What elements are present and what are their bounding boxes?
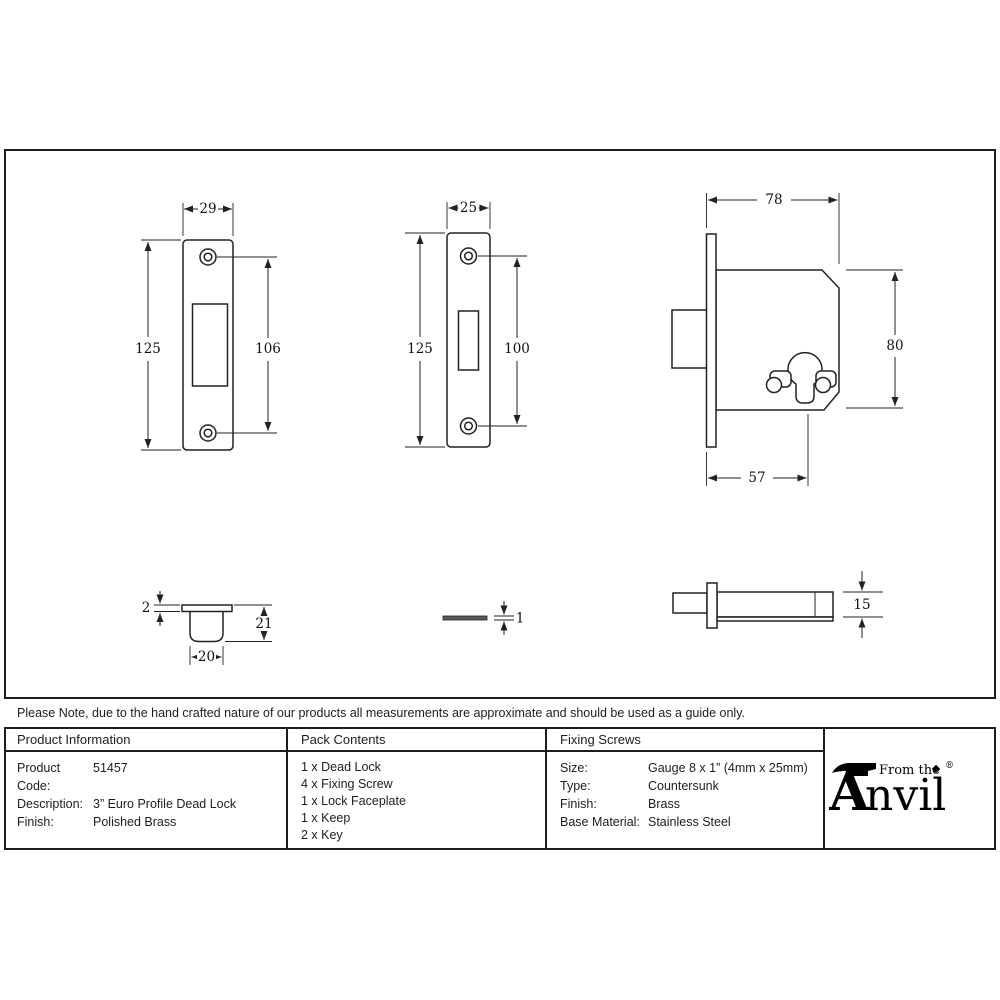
dim-label: 2 <box>142 600 151 616</box>
pack-item: 2 x Key <box>301 827 545 844</box>
left-cam-cutout-circle <box>767 378 782 393</box>
dim-width-29: 29 <box>183 201 233 236</box>
dim-label: 125 <box>407 341 433 357</box>
dim-height-15: 15 <box>843 571 883 638</box>
dim-lip-2: 2 <box>138 591 180 626</box>
row-label: Size: <box>560 759 648 777</box>
note-text: Please Note, due to the hand crafted nat… <box>17 706 745 720</box>
row-value: Polished Brass <box>93 813 176 831</box>
dim-label: 100 <box>504 341 530 357</box>
row-value: Stainless Steel <box>648 813 731 831</box>
table-row: Finish: Polished Brass <box>17 813 286 831</box>
dim-height-125: 125 <box>405 233 445 447</box>
dim-label: 57 <box>748 470 765 486</box>
row-label: Description: <box>17 795 93 813</box>
pack-item: 4 x Fixing Screw <box>301 776 545 793</box>
table-row: Base Material: Stainless Steel <box>560 813 823 831</box>
dim-label: 20 <box>198 649 215 665</box>
keep-flange <box>182 605 232 612</box>
drawing-keep-profile: 2 21 20 <box>138 591 273 665</box>
logo-from-the: From the <box>879 763 940 778</box>
product-info-table: Product Information Product Code: 51457 … <box>4 729 996 848</box>
row-label: Finish: <box>560 795 648 813</box>
dim-height-125: 125 <box>135 240 181 450</box>
dim-label: 21 <box>255 616 272 632</box>
dim-width-25: 25 <box>447 200 490 229</box>
column-fixing-screws: Fixing Screws Size: Gauge 8 x 1” (4mm x … <box>545 729 823 848</box>
column-pack-contents: Pack Contents 1 x Dead Lock 4 x Fixing S… <box>286 729 545 848</box>
dim-label: 15 <box>853 597 870 613</box>
row-value: Gauge 8 x 1” (4mm x 25mm) <box>648 759 808 777</box>
drawing-lock-case-top: 15 <box>673 571 883 638</box>
row-value: Brass <box>648 795 680 813</box>
table-row: Product Code: 51457 <box>17 759 286 795</box>
row-value: 51457 <box>93 759 128 795</box>
dim-label: 25 <box>460 200 477 216</box>
row-value: 3” Euro Profile Dead Lock <box>93 795 236 813</box>
dim-label: 1 <box>516 611 525 627</box>
column-header: Fixing Screws <box>547 729 823 752</box>
dim-height-80: 80 <box>846 270 904 408</box>
case-body-top <box>717 592 833 617</box>
faceplate-flange <box>707 583 717 628</box>
faceplate-edge-bar <box>443 616 487 620</box>
deadbolt-top <box>673 593 707 613</box>
drawing-keep-faceplate-front: 25 125 100 <box>405 200 530 447</box>
dim-backset-57: 57 <box>707 414 809 486</box>
drawing-faceplate-edge: 1 <box>443 601 524 635</box>
registered-mark: ® <box>945 761 954 771</box>
case-lip <box>717 617 833 621</box>
row-label: Type: <box>560 777 648 795</box>
keep-slot <box>459 311 479 370</box>
dim-label: 106 <box>255 341 281 357</box>
dim-width-78: 78 <box>707 192 840 264</box>
pack-item: 1 x Dead Lock <box>301 759 545 776</box>
measurement-note: Please Note, due to the hand crafted nat… <box>4 697 996 729</box>
dim-label: 29 <box>199 201 216 217</box>
dim-label: 78 <box>765 192 782 208</box>
faceplate-edge-view <box>707 234 717 447</box>
column-header: Pack Contents <box>288 729 545 752</box>
table-row: Finish: Brass <box>560 795 823 813</box>
drawing-lock-case: 78 80 57 <box>672 192 904 486</box>
screw-hole-inner <box>465 252 473 260</box>
row-label: Base Material: <box>560 813 648 831</box>
technical-drawings: 29 125 106 <box>0 0 1000 1000</box>
bolt-slot <box>193 304 228 386</box>
row-label: Finish: <box>17 813 93 831</box>
table-row: Type: Countersunk <box>560 777 823 795</box>
drawing-lock-faceplate-front: 29 125 106 <box>135 201 281 450</box>
dim-width-20: 20 <box>190 646 223 665</box>
dim-label: 125 <box>135 341 161 357</box>
column-brand-logo: A nvil From the ® <box>823 729 992 848</box>
deadbolt <box>672 310 707 368</box>
screw-hole-inner <box>204 429 212 437</box>
from-the-anvil-logo: A nvil From the ® <box>829 758 989 820</box>
column-header: Product Information <box>4 729 286 752</box>
pack-item: 1 x Lock Faceplate <box>301 793 545 810</box>
pack-item: 1 x Keep <box>301 810 545 827</box>
column-product-information: Product Information Product Code: 51457 … <box>4 729 286 848</box>
screw-hole-inner <box>465 422 473 430</box>
screw-hole-inner <box>204 253 212 261</box>
table-row: Size: Gauge 8 x 1” (4mm x 25mm) <box>560 759 823 777</box>
spec-sheet-page: 29 125 106 <box>0 0 1000 1000</box>
row-label: Product Code: <box>17 759 93 795</box>
dim-label: 80 <box>886 338 903 354</box>
keep-cup <box>190 612 223 642</box>
table-row: Description: 3” Euro Profile Dead Lock <box>17 795 286 813</box>
row-value: Countersunk <box>648 777 719 795</box>
right-cam-cutout-circle <box>816 378 831 393</box>
